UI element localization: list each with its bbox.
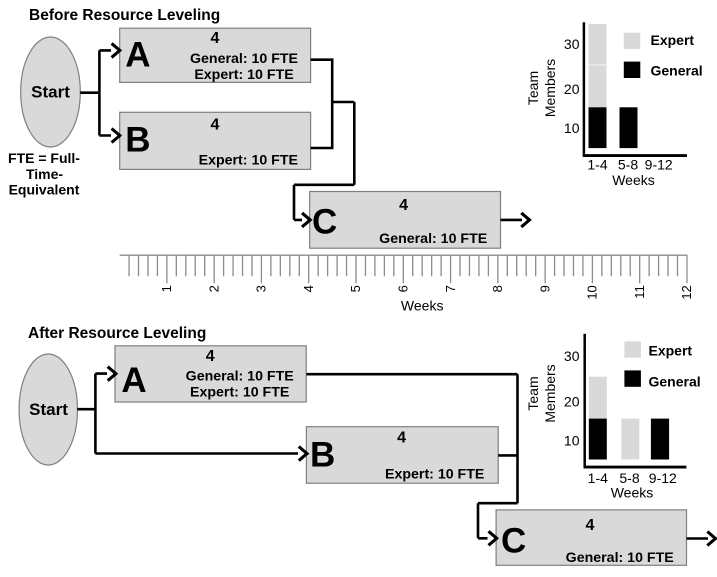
svg-text:10: 10	[564, 433, 580, 449]
svg-text:Before Resource Leveling: Before Resource Leveling	[29, 7, 220, 24]
svg-text:3: 3	[254, 285, 269, 292]
svg-text:5: 5	[348, 285, 363, 292]
svg-text:4: 4	[397, 430, 406, 447]
svg-text:Time-: Time-	[26, 166, 63, 182]
svg-text:11: 11	[632, 285, 647, 299]
svg-text:Expert: 10 FTE: Expert: 10 FTE	[199, 152, 298, 168]
svg-text:10: 10	[585, 285, 600, 299]
svg-text:9: 9	[537, 285, 552, 292]
svg-text:B: B	[310, 436, 335, 475]
svg-text:6: 6	[396, 285, 411, 292]
svg-text:General: 10 FTE: General: 10 FTE	[190, 51, 298, 67]
svg-text:30: 30	[564, 348, 580, 364]
svg-text:Weeks: Weeks	[401, 298, 444, 314]
svg-text:12: 12	[679, 285, 694, 299]
svg-text:20: 20	[564, 81, 580, 97]
svg-text:FTE = Full-: FTE = Full-	[8, 150, 80, 166]
svg-text:Start: Start	[29, 400, 68, 419]
svg-text:1-4: 1-4	[587, 157, 607, 173]
svg-text:9-12: 9-12	[645, 157, 673, 173]
svg-text:4: 4	[586, 517, 595, 534]
svg-text:C: C	[312, 203, 337, 242]
svg-text:Expert: 10 FTE: Expert: 10 FTE	[194, 67, 293, 83]
svg-text:4: 4	[206, 348, 215, 365]
svg-text:A: A	[125, 36, 150, 75]
svg-text:4: 4	[211, 30, 220, 47]
svg-text:20: 20	[564, 393, 580, 409]
svg-text:1: 1	[159, 285, 174, 292]
svg-text:C: C	[501, 522, 526, 561]
svg-text:General: General	[651, 62, 703, 78]
svg-text:General: 10 FTE: General: 10 FTE	[186, 369, 294, 385]
svg-text:Weeks: Weeks	[611, 484, 654, 500]
svg-text:Members: Members	[542, 59, 558, 117]
svg-text:Members: Members	[542, 364, 558, 422]
svg-text:30: 30	[564, 36, 580, 52]
svg-text:5-8: 5-8	[618, 157, 638, 173]
svg-text:General: 10 FTE: General: 10 FTE	[566, 550, 674, 566]
svg-text:4: 4	[399, 197, 408, 214]
svg-text:Team: Team	[525, 376, 541, 410]
svg-text:4: 4	[211, 116, 220, 133]
svg-text:Expert: 10 FTE: Expert: 10 FTE	[385, 466, 484, 482]
svg-text:Expert: Expert	[649, 343, 693, 359]
svg-text:B: B	[125, 120, 150, 159]
svg-text:1-4: 1-4	[588, 470, 608, 486]
svg-text:A: A	[121, 361, 146, 400]
svg-text:General: General	[649, 373, 701, 389]
svg-text:General: 10 FTE: General: 10 FTE	[379, 231, 487, 247]
svg-text:8: 8	[490, 285, 505, 292]
svg-text:2: 2	[206, 285, 221, 292]
svg-text:Weeks: Weeks	[612, 172, 655, 188]
svg-text:Expert: 10 FTE: Expert: 10 FTE	[190, 384, 289, 400]
svg-text:Equivalent: Equivalent	[9, 181, 80, 197]
svg-text:Team: Team	[525, 71, 541, 105]
svg-text:10: 10	[564, 120, 580, 136]
svg-text:4: 4	[301, 285, 316, 292]
svg-text:7: 7	[443, 285, 458, 292]
svg-text:Expert: Expert	[651, 32, 695, 48]
svg-text:Start: Start	[31, 82, 70, 101]
svg-text:After Resource Leveling: After Resource Leveling	[28, 325, 206, 342]
